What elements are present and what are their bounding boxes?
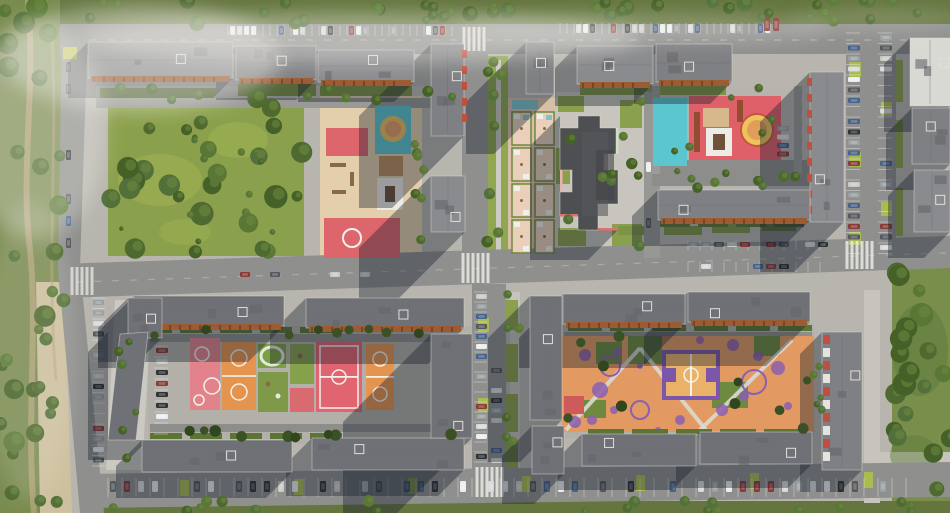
balcony-tick: [773, 219, 775, 224]
tree-highlight: [167, 177, 178, 188]
tree-highlight: [199, 205, 211, 217]
tree-highlight: [423, 166, 427, 170]
tree-highlight: [206, 143, 214, 151]
tree-highlight: [221, 497, 227, 503]
balcony-accent: [462, 98, 467, 106]
roof-patch: [757, 438, 769, 443]
balcony-accent: [807, 174, 812, 182]
tree-highlight: [39, 496, 45, 502]
balcony-tick: [608, 323, 610, 328]
tree-highlight: [638, 242, 643, 247]
tree-highlight: [641, 98, 645, 102]
balcony-tick: [628, 323, 630, 328]
balcony-tick: [783, 219, 785, 224]
car-roof: [478, 335, 484, 338]
loggia-stripe: [823, 452, 830, 461]
shape: [276, 394, 281, 399]
tree-highlight: [767, 10, 772, 15]
hedge: [588, 429, 624, 434]
tree: [382, 328, 392, 338]
roof-patch: [541, 456, 550, 463]
tree-highlight: [135, 410, 138, 413]
car-roof: [883, 36, 890, 39]
balcony-accent: [462, 82, 467, 90]
tree-highlight: [688, 144, 692, 148]
car-roof: [881, 483, 884, 489]
tree-highlight: [506, 325, 510, 329]
tree: [150, 331, 158, 339]
play-equipment: [520, 199, 523, 202]
tree-highlight: [633, 497, 639, 503]
balcony-tick: [229, 325, 231, 330]
canopy: [514, 150, 520, 155]
balcony-tick: [743, 219, 745, 224]
balcony-tick: [259, 325, 261, 330]
roof-patch: [379, 307, 391, 313]
roof-patch: [332, 320, 339, 326]
roof-patch: [325, 71, 332, 81]
balcony-tick: [671, 81, 673, 86]
car-roof: [478, 375, 484, 378]
loggia-stripe: [823, 374, 830, 383]
tree-highlight: [203, 156, 207, 160]
balcony-tick: [393, 81, 395, 86]
tree: [201, 325, 210, 334]
roof-patch: [667, 52, 678, 62]
tree-highlight: [918, 286, 924, 292]
tree-highlight: [895, 430, 904, 439]
roof-patch: [918, 205, 931, 212]
canopy: [523, 246, 529, 251]
tree-highlight: [272, 120, 280, 128]
tree-highlight: [487, 68, 492, 73]
roof-patch: [379, 71, 391, 77]
tree-highlight: [420, 236, 425, 241]
balcony-tick: [793, 219, 795, 224]
balcony-tick: [271, 79, 273, 84]
balcony-band: [691, 320, 807, 326]
tree: [290, 432, 300, 442]
tree-highlight: [148, 124, 154, 130]
tree-highlight: [132, 241, 142, 251]
tree-highlight: [255, 91, 265, 101]
tree: [344, 325, 353, 334]
tree-highlight: [907, 364, 918, 375]
tree-highlight: [451, 94, 455, 98]
car-roof: [95, 322, 101, 325]
roof-patch: [141, 325, 148, 332]
tree-highlight: [296, 192, 301, 197]
tree-highlight: [246, 216, 256, 226]
tree-highlight: [262, 9, 267, 14]
tree: [734, 377, 743, 386]
balcony-tick: [588, 323, 590, 328]
car-roof: [95, 312, 101, 315]
balcony-tick: [291, 79, 293, 84]
car-roof: [883, 57, 890, 60]
balcony-tick: [661, 81, 663, 86]
shape: [320, 376, 358, 378]
car-roof: [703, 265, 709, 268]
tree: [576, 338, 585, 347]
tree-highlight: [505, 434, 510, 439]
roof-patch: [838, 391, 846, 398]
tree: [332, 328, 342, 338]
balcony-tick: [663, 219, 665, 224]
balcony-tick: [323, 81, 325, 86]
school-accent: [560, 170, 563, 192]
loggia-stripe: [823, 439, 830, 448]
balcony-tick: [592, 83, 594, 88]
screenshot-root: [0, 0, 950, 513]
tree-highlight: [194, 138, 197, 141]
school-accent: [616, 128, 619, 154]
tree-highlight: [185, 126, 191, 132]
car-roof: [755, 265, 761, 268]
tree-highlight: [254, 506, 259, 511]
tree: [200, 426, 208, 434]
tree: [729, 398, 740, 409]
balcony-tick: [353, 81, 355, 86]
car-roof: [478, 415, 484, 418]
car-roof: [478, 295, 484, 298]
tree-highlight: [199, 117, 206, 124]
car-roof: [159, 415, 166, 418]
roof-patch: [937, 129, 947, 135]
car-roof: [851, 194, 858, 197]
balcony-tick: [281, 79, 283, 84]
tree-highlight: [656, 0, 662, 6]
roof-patch: [820, 179, 830, 185]
car-roof: [478, 325, 484, 328]
play-lawn: [258, 372, 288, 412]
car-roof: [478, 435, 484, 438]
car-roof: [851, 89, 858, 92]
balcony-tick: [361, 327, 363, 332]
car-roof: [159, 393, 166, 396]
tree: [445, 429, 457, 441]
tree-highlight: [761, 130, 765, 134]
balcony-tick: [568, 323, 570, 328]
balcony-tick: [249, 325, 251, 330]
tree-highlight: [730, 95, 733, 98]
roof-patch: [588, 454, 596, 462]
balcony-tick: [673, 219, 675, 224]
tree-highlight: [820, 395, 823, 398]
tree-highlight: [128, 339, 132, 343]
roof-patch: [739, 455, 749, 465]
balcony-band: [580, 82, 650, 88]
sandbox: [703, 108, 729, 127]
car-roof: [272, 273, 278, 276]
roof-patch: [249, 305, 262, 314]
roof-patch: [437, 96, 448, 106]
tree-highlight: [900, 498, 905, 503]
balcony-tick: [733, 321, 735, 326]
car-roof: [478, 345, 484, 348]
tree-highlight: [812, 372, 816, 376]
tree-highlight: [620, 6, 626, 12]
canopy: [523, 174, 529, 179]
balcony-band: [659, 80, 729, 86]
car-roof: [67, 240, 70, 246]
shape: [675, 415, 685, 425]
tree: [314, 325, 323, 334]
tree-highlight: [125, 160, 136, 171]
balcony-tick: [451, 327, 453, 332]
car-roof: [478, 305, 484, 308]
balcony-tick: [441, 327, 443, 332]
tree-highlight: [112, 504, 117, 509]
tree-highlight: [909, 503, 913, 507]
car-roof: [853, 483, 856, 489]
tree-highlight: [761, 183, 765, 187]
roof-patch: [633, 308, 642, 314]
tree-highlight: [771, 117, 775, 121]
roof-patch: [668, 65, 681, 73]
balcony-tick: [773, 321, 775, 326]
balcony-tick: [333, 81, 335, 86]
balcony-tick: [733, 219, 735, 224]
tree-highlight: [326, 86, 331, 91]
roof-patch: [533, 59, 540, 68]
tree-highlight: [486, 237, 492, 243]
balcony-accent: [807, 110, 812, 118]
shape: [330, 163, 346, 167]
balcony-tick: [401, 327, 403, 332]
tree-highlight: [261, 243, 269, 251]
roof-patch: [915, 59, 927, 69]
tree-highlight: [272, 230, 275, 233]
car-roof: [851, 99, 858, 102]
tree-highlight: [497, 229, 502, 234]
tree-highlight: [714, 179, 719, 184]
tree-highlight: [492, 3, 496, 7]
tree-highlight: [690, 176, 694, 180]
tree-highlight: [505, 414, 509, 418]
tree-highlight: [923, 381, 930, 388]
tree: [324, 430, 333, 439]
tree-highlight: [375, 96, 380, 101]
roof-patch: [824, 202, 830, 210]
tree-highlight: [420, 195, 424, 199]
shape: [592, 382, 608, 398]
play-equipment: [520, 235, 523, 238]
balcony-tick: [763, 321, 765, 326]
roof-patch: [208, 309, 216, 319]
shape: [713, 134, 725, 150]
roof-patch: [190, 458, 200, 465]
tree-highlight: [492, 91, 498, 97]
shape: [771, 361, 785, 375]
tree-highlight: [488, 189, 494, 195]
tree: [285, 331, 294, 340]
balcony-tick: [602, 83, 604, 88]
loggia-stripe: [823, 426, 830, 435]
tree-highlight: [121, 427, 125, 431]
tree-highlight: [431, 3, 437, 9]
car-roof: [851, 183, 858, 186]
balcony-tick: [658, 323, 660, 328]
roof-patch: [543, 390, 553, 399]
loggia-stripe: [823, 361, 830, 370]
roof-patch: [828, 448, 841, 456]
shape: [694, 112, 700, 152]
tree-highlight: [500, 71, 506, 77]
aerial-site-plan: [0, 0, 950, 513]
shape: [737, 100, 743, 122]
car-roof: [478, 455, 484, 458]
tree-highlight: [931, 446, 941, 456]
tree-highlight: [683, 497, 688, 502]
balcony-accent: [462, 66, 467, 74]
tree-highlight: [569, 135, 575, 141]
roof-patch: [633, 452, 642, 457]
canopy: [514, 222, 520, 227]
tree: [798, 423, 809, 434]
balcony-tick: [239, 325, 241, 330]
shape: [666, 368, 676, 382]
balcony-tick: [199, 325, 201, 330]
car-roof: [851, 57, 858, 60]
tree-highlight: [117, 348, 122, 353]
car-roof: [883, 47, 890, 50]
tree-highlight: [674, 149, 677, 152]
balcony-tick: [179, 325, 181, 330]
tree-highlight: [493, 122, 498, 127]
car-roof: [279, 483, 282, 489]
tree-highlight: [637, 172, 641, 176]
car-roof: [647, 164, 650, 170]
tree-highlight: [818, 364, 822, 368]
roof-patch: [791, 307, 801, 317]
hedge: [632, 429, 668, 434]
tree-highlight: [935, 483, 943, 491]
balcony-tick: [691, 81, 693, 86]
tree-highlight: [512, 438, 516, 442]
tree-highlight: [758, 85, 762, 89]
car-roof: [159, 371, 166, 374]
tree-highlight: [260, 160, 263, 163]
tree-highlight: [898, 330, 909, 341]
tree-highlight: [904, 408, 912, 416]
car-roof: [851, 120, 858, 123]
tree-highlight: [506, 5, 514, 13]
car-roof: [478, 355, 484, 358]
car-roof: [851, 78, 858, 81]
tree-highlight: [426, 87, 432, 93]
court-red-small: [564, 396, 584, 414]
shape: [587, 415, 597, 425]
balcony-tick: [713, 219, 715, 224]
car-roof: [851, 68, 858, 71]
school-accent: [598, 228, 618, 231]
tree: [803, 376, 811, 384]
balcony-tick: [383, 81, 385, 86]
roof-patch: [777, 197, 790, 203]
tree-highlight: [821, 407, 825, 411]
roof-patch: [318, 444, 330, 450]
tree-highlight: [416, 153, 421, 158]
tree-highlight: [194, 247, 201, 254]
balcony-tick: [578, 323, 580, 328]
tree-highlight: [757, 177, 762, 182]
tree: [563, 413, 572, 422]
tree: [598, 360, 609, 371]
canopy: [537, 114, 543, 119]
shape: [350, 172, 354, 186]
balcony-tick: [411, 327, 413, 332]
balcony-tick: [681, 81, 683, 86]
balcony-tick: [683, 219, 685, 224]
car-roof: [159, 382, 166, 385]
balcony-tick: [743, 321, 745, 326]
loggia-stripe: [823, 335, 830, 344]
balcony-accent: [807, 126, 812, 134]
car-roof: [478, 315, 484, 318]
roof-patch: [935, 135, 946, 144]
shape: [222, 375, 256, 377]
tree-highlight: [414, 141, 418, 145]
balcony-tick: [703, 321, 705, 326]
car-roof: [95, 301, 101, 304]
tree-highlight: [794, 173, 799, 178]
car-roof: [478, 405, 484, 408]
roof-patch: [133, 314, 144, 322]
car-roof: [111, 483, 114, 489]
balcony-tick: [391, 327, 393, 332]
car-roof: [159, 404, 166, 407]
car-roof: [851, 152, 858, 155]
balcony-tick: [703, 219, 705, 224]
tree-highlight: [518, 325, 523, 330]
tree-highlight: [198, 239, 201, 242]
tree-highlight: [108, 191, 118, 201]
roof-patch: [934, 175, 946, 184]
tree: [185, 426, 195, 436]
shape: [332, 190, 346, 194]
play-equipment: [520, 163, 523, 166]
shape: [266, 382, 271, 387]
roof-patch: [437, 460, 448, 468]
tree-highlight: [269, 101, 278, 110]
tree-highlight: [782, 172, 788, 178]
court-red-small: [290, 388, 314, 412]
car-roof: [478, 425, 484, 428]
tree-highlight: [584, 509, 588, 513]
tree-highlight: [3, 6, 9, 12]
tree-highlight: [711, 499, 716, 504]
tree-highlight: [376, 508, 381, 513]
tree-highlight: [273, 188, 285, 200]
roof-patch: [602, 62, 610, 70]
tree: [775, 405, 785, 415]
tree-highlight: [127, 180, 138, 191]
balcony-tick: [311, 327, 313, 332]
play-equipment: [543, 127, 546, 130]
tree-highlight: [121, 361, 126, 366]
balcony-tick: [169, 325, 171, 330]
balcony-tick: [753, 219, 755, 224]
canopy: [514, 186, 520, 191]
tree-highlight: [177, 192, 183, 198]
court-cyan: [653, 98, 687, 166]
tree-highlight: [375, 3, 382, 10]
tree-highlight: [126, 455, 130, 459]
roof-patch: [545, 408, 556, 415]
tree-highlight: [506, 291, 510, 295]
balcony-tick: [431, 327, 433, 332]
